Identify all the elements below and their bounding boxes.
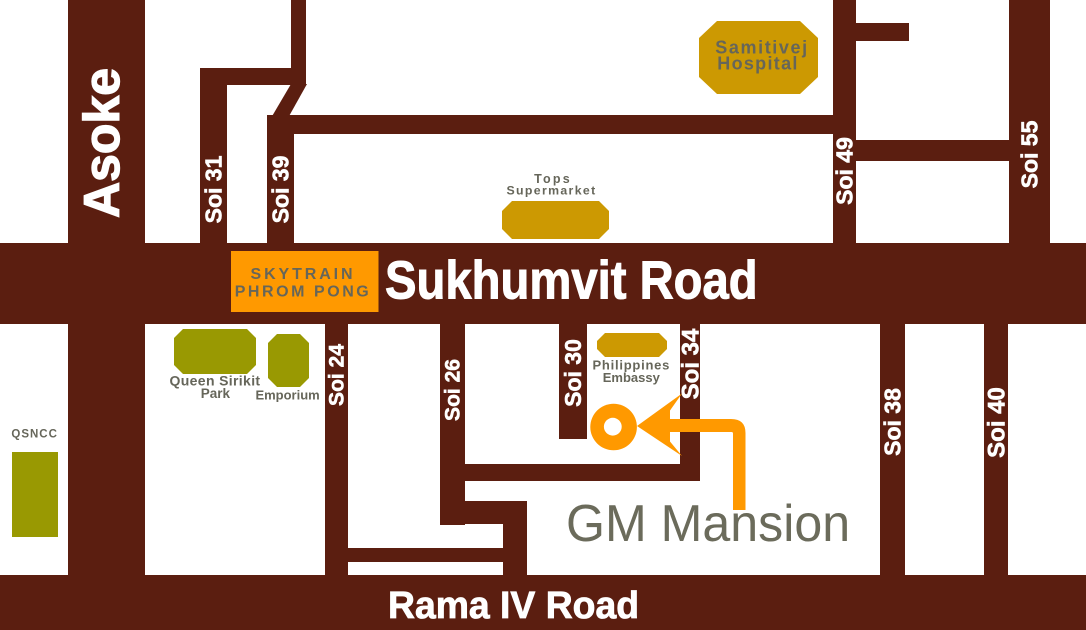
svg-text:Sukhumvit Road: Sukhumvit Road [385,250,758,311]
svg-text:Soi 26: Soi 26 [442,359,465,421]
svg-text:Soi 38: Soi 38 [880,388,906,456]
svg-text:Supermarket: Supermarket [506,184,596,198]
svg-text:SKYTRAIN: SKYTRAIN [251,266,356,283]
svg-text:PHROM PONG: PHROM PONG [235,284,372,301]
svg-text:Asoke: Asoke [74,68,130,218]
svg-text:QSNCC: QSNCC [11,429,58,441]
svg-text:Hospital: Hospital [717,54,798,74]
svg-text:Soi 34: Soi 34 [678,328,705,399]
svg-text:Soi 31: Soi 31 [201,155,227,223]
svg-text:Soi 40: Soi 40 [984,387,1011,458]
svg-text:Embassy: Embassy [603,370,661,385]
svg-text:Soi 49: Soi 49 [832,137,858,205]
svg-text:Soi 39: Soi 39 [268,156,294,224]
svg-text:Soi 30: Soi 30 [560,339,586,407]
svg-text:Park: Park [201,386,231,401]
svg-text:Emporium: Emporium [255,388,319,403]
svg-text:Soi 24: Soi 24 [326,344,349,406]
svg-text:Rama IV Road: Rama IV Road [388,584,639,626]
svg-text:Soi 55: Soi 55 [1017,120,1043,188]
svg-text:GM Mansion: GM Mansion [566,494,850,552]
